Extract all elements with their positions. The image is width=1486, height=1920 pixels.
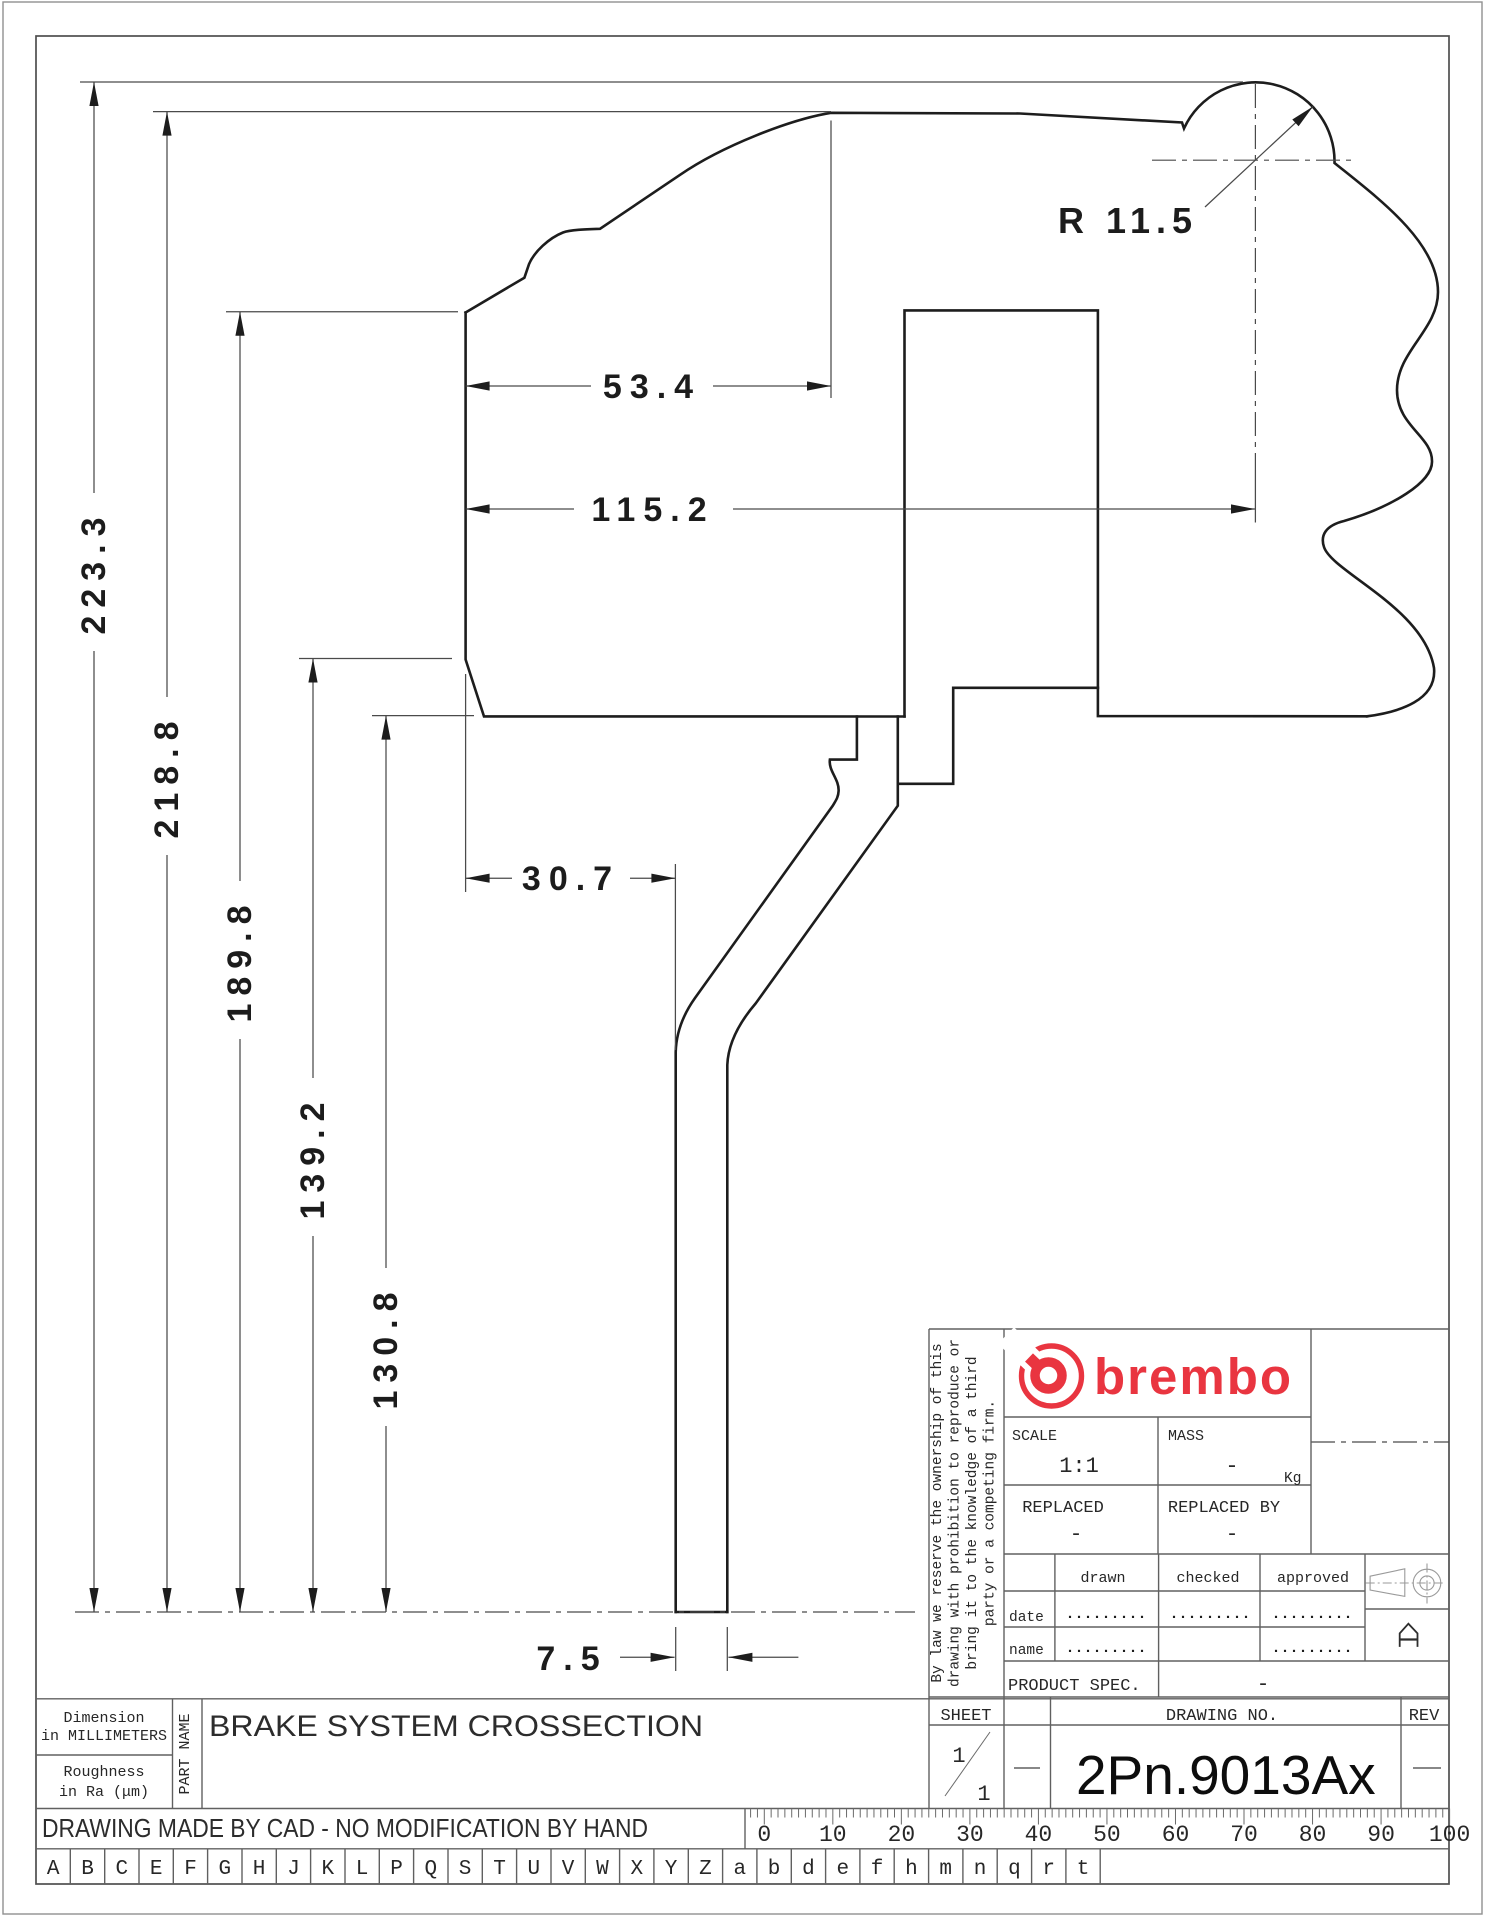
svg-text:q: q xyxy=(1008,1858,1021,1881)
svg-text:drawn: drawn xyxy=(1080,1570,1125,1587)
svg-text:in MILLIMETERS: in MILLIMETERS xyxy=(41,1728,167,1745)
svg-text:.........: ......... xyxy=(1065,1606,1146,1623)
svg-text:H: H xyxy=(253,1858,266,1881)
svg-text:in Ra (μm): in Ra (μm) xyxy=(59,1784,149,1801)
svg-text:100: 100 xyxy=(1429,1822,1470,1848)
svg-text:L: L xyxy=(356,1858,369,1881)
svg-text:B: B xyxy=(81,1858,94,1881)
svg-text:0: 0 xyxy=(757,1822,771,1848)
svg-text:REPLACED BY: REPLACED BY xyxy=(1168,1499,1280,1518)
svg-text:-: - xyxy=(1070,1524,1083,1547)
svg-text:n: n xyxy=(974,1858,987,1881)
svg-text:checked: checked xyxy=(1176,1570,1239,1587)
svg-text:e: e xyxy=(836,1858,849,1881)
svg-text:70: 70 xyxy=(1230,1822,1258,1848)
svg-text:223.3: 223.3 xyxy=(75,509,113,634)
svg-text:U: U xyxy=(527,1858,540,1881)
svg-text:K: K xyxy=(321,1858,334,1881)
svg-text:By law we reserve the ownershi: By law we reserve the ownership of this xyxy=(930,1343,946,1682)
svg-text:115.2: 115.2 xyxy=(591,491,714,529)
svg-text:218.8: 218.8 xyxy=(148,713,186,838)
svg-text:d: d xyxy=(802,1858,815,1881)
svg-text:REV: REV xyxy=(1409,1707,1440,1726)
svg-text:P: P xyxy=(390,1858,403,1881)
svg-text:189.8: 189.8 xyxy=(221,897,259,1022)
svg-text:A: A xyxy=(47,1858,60,1881)
svg-text:SHEET: SHEET xyxy=(940,1707,991,1726)
svg-text:G: G xyxy=(218,1858,231,1881)
svg-text:10: 10 xyxy=(819,1822,847,1848)
svg-text:139.2: 139.2 xyxy=(294,1094,332,1219)
svg-text:DRAWING MADE BY CAD - NO MODIF: DRAWING MADE BY CAD - NO MODIFICATION BY… xyxy=(42,1813,648,1843)
svg-text:30.7: 30.7 xyxy=(522,860,620,898)
svg-text:C: C xyxy=(115,1858,128,1881)
svg-text:REPLACED: REPLACED xyxy=(1022,1499,1104,1518)
svg-text:date: date xyxy=(1009,1610,1044,1626)
svg-text:Roughness: Roughness xyxy=(63,1764,144,1781)
svg-text:.........: ......... xyxy=(1271,1640,1352,1657)
svg-text:r: r xyxy=(1042,1858,1055,1881)
svg-text:20: 20 xyxy=(888,1822,916,1848)
svg-text:party or a competing firm.: party or a competing firm. xyxy=(983,1400,999,1626)
svg-text:80: 80 xyxy=(1299,1822,1327,1848)
svg-text:.........: ......... xyxy=(1065,1640,1146,1657)
svg-text:bring it to the knowledge of a: bring it to the knowledge of a third xyxy=(965,1356,981,1669)
svg-text:90: 90 xyxy=(1367,1822,1395,1848)
svg-text:1:1: 1:1 xyxy=(1059,1454,1099,1479)
svg-text:30: 30 xyxy=(956,1822,984,1848)
svg-text:2Pn.9013Ax: 2Pn.9013Ax xyxy=(1076,1744,1376,1806)
svg-text:name: name xyxy=(1009,1643,1044,1659)
svg-text:.........: ......... xyxy=(1169,1606,1250,1623)
svg-text:approved: approved xyxy=(1277,1570,1349,1587)
svg-text:-: - xyxy=(1257,1674,1270,1697)
svg-text:Kg: Kg xyxy=(1284,1471,1301,1487)
svg-text:BRAKE SYSTEM CROSSECTION: BRAKE SYSTEM CROSSECTION xyxy=(209,1710,703,1743)
svg-text:Y: Y xyxy=(665,1858,678,1881)
svg-text:1: 1 xyxy=(952,1744,965,1769)
svg-text:40: 40 xyxy=(1025,1822,1053,1848)
svg-text:PART NAME: PART NAME xyxy=(177,1713,194,1794)
svg-text:b: b xyxy=(768,1858,781,1881)
svg-text:m: m xyxy=(939,1858,952,1881)
svg-text:V: V xyxy=(562,1858,575,1881)
svg-text:60: 60 xyxy=(1162,1822,1190,1848)
svg-text:50: 50 xyxy=(1093,1822,1121,1848)
svg-text:R 11.5: R 11.5 xyxy=(1058,200,1198,241)
svg-text:h: h xyxy=(905,1858,918,1881)
svg-text:SCALE: SCALE xyxy=(1012,1428,1057,1445)
svg-text:brembo: brembo xyxy=(1094,1348,1293,1405)
svg-text:Z: Z xyxy=(699,1858,712,1881)
svg-text:DRAWING NO.: DRAWING NO. xyxy=(1166,1707,1278,1726)
svg-text:t: t xyxy=(1077,1858,1090,1881)
svg-text:S: S xyxy=(459,1858,472,1881)
svg-text:1: 1 xyxy=(977,1782,990,1807)
svg-text:53.4: 53.4 xyxy=(603,368,701,406)
svg-text:Q: Q xyxy=(424,1858,437,1881)
svg-text:T: T xyxy=(493,1858,506,1881)
svg-text:E: E xyxy=(150,1858,163,1881)
svg-text:.........: ......... xyxy=(1271,1606,1352,1623)
svg-text:drawing with prohibition to re: drawing with prohibition to reproduce or xyxy=(948,1339,964,1687)
svg-text:-: - xyxy=(1225,1454,1238,1479)
svg-text:a: a xyxy=(733,1858,746,1881)
svg-text:PRODUCT SPEC.: PRODUCT SPEC. xyxy=(1008,1677,1141,1696)
svg-text:f: f xyxy=(871,1858,884,1881)
svg-text:X: X xyxy=(630,1858,643,1881)
svg-text:MASS: MASS xyxy=(1168,1428,1204,1445)
svg-text:W: W xyxy=(596,1858,609,1881)
svg-text:130.8: 130.8 xyxy=(367,1284,405,1409)
svg-text:J: J xyxy=(287,1858,300,1881)
svg-text:7.5: 7.5 xyxy=(536,1640,607,1678)
svg-text:Dimension: Dimension xyxy=(63,1710,144,1727)
svg-text:-: - xyxy=(1226,1524,1239,1547)
svg-text:F: F xyxy=(184,1858,197,1881)
